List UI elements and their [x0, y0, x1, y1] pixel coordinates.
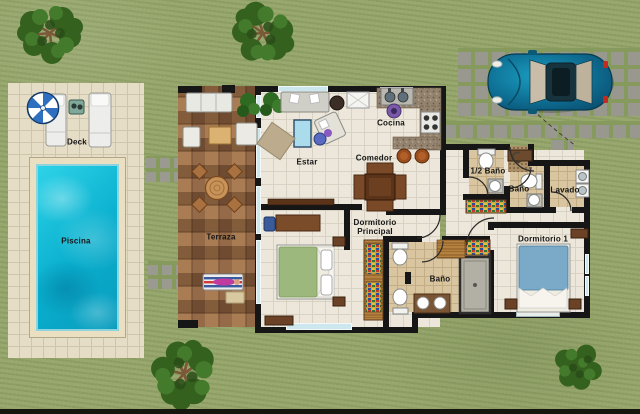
- window-left-2: [256, 128, 261, 178]
- pool-water: [36, 164, 119, 331]
- wall-halfbath-bottom: [463, 194, 510, 200]
- wall-halfbath-left: [463, 144, 469, 178]
- window-living-top: [278, 86, 328, 92]
- window-bedroom1-right-1: [585, 254, 589, 274]
- image-bottom-edge: [0, 409, 640, 414]
- wall-bedroom1-top: [494, 222, 590, 228]
- wall-bedroom1-left-b: [488, 250, 494, 312]
- window-bedroom1-bottom: [516, 311, 560, 317]
- wall-bedroom1-left-a: [488, 222, 494, 230]
- label-lavado: Lavado: [550, 185, 579, 194]
- window-bedroom-principal-bottom: [286, 323, 352, 330]
- wall-entry-left: [440, 144, 510, 150]
- terrace-pillar-bl: [178, 320, 198, 328]
- driveway-parking-pad: [458, 48, 640, 116]
- terrace-floor: [178, 86, 258, 327]
- wall-mainbath-top-b: [442, 236, 490, 242]
- label-deck: Deck: [67, 137, 87, 146]
- label-bath-main: Baño: [430, 274, 451, 283]
- label-terraza: Terraza: [206, 232, 235, 241]
- window-kitchen: [380, 87, 413, 92]
- label-half-bath: 1/2 Baño: [471, 166, 506, 175]
- wall-bath-laundry: [544, 160, 550, 213]
- label-dormitorio-principal: Dormitorio Principal: [343, 218, 407, 236]
- label-estar: Estar: [296, 157, 317, 166]
- garden-path-lower: [148, 261, 179, 289]
- site-plan: Deck Piscina Terraza Estar Comedor Cocin…: [0, 0, 640, 414]
- wall-bottom-right: [412, 312, 590, 318]
- terrace-pillar-tm: [222, 85, 235, 93]
- label-piscina: Piscina: [61, 236, 90, 245]
- garden-path-upper: [146, 156, 179, 182]
- wall-bedroom-principal-right: [383, 236, 389, 327]
- label-bath-top: Baño: [509, 184, 530, 193]
- terrace-pillar-tl: [178, 86, 202, 93]
- driveway-strip: [443, 121, 640, 138]
- wall-laundry-top: [528, 160, 590, 166]
- wall-laundry-bottom-a: [550, 207, 556, 213]
- label-cocina: Cocina: [377, 118, 405, 127]
- window-left-1: [256, 95, 261, 118]
- window-bedroom1-right-2: [585, 276, 589, 296]
- wall-toilet-stub: [405, 272, 411, 284]
- wall-hall-top: [386, 209, 442, 215]
- label-comedor: Comedor: [356, 153, 393, 162]
- label-dormitorio-1: Dormitorio 1: [518, 234, 568, 243]
- wall-laundry-bottom-b: [572, 207, 590, 213]
- entry-mat: [508, 146, 530, 172]
- window-left-3: [256, 186, 261, 234]
- wall-kitchen-right: [440, 86, 446, 215]
- window-bedroom-principal-left: [256, 240, 261, 304]
